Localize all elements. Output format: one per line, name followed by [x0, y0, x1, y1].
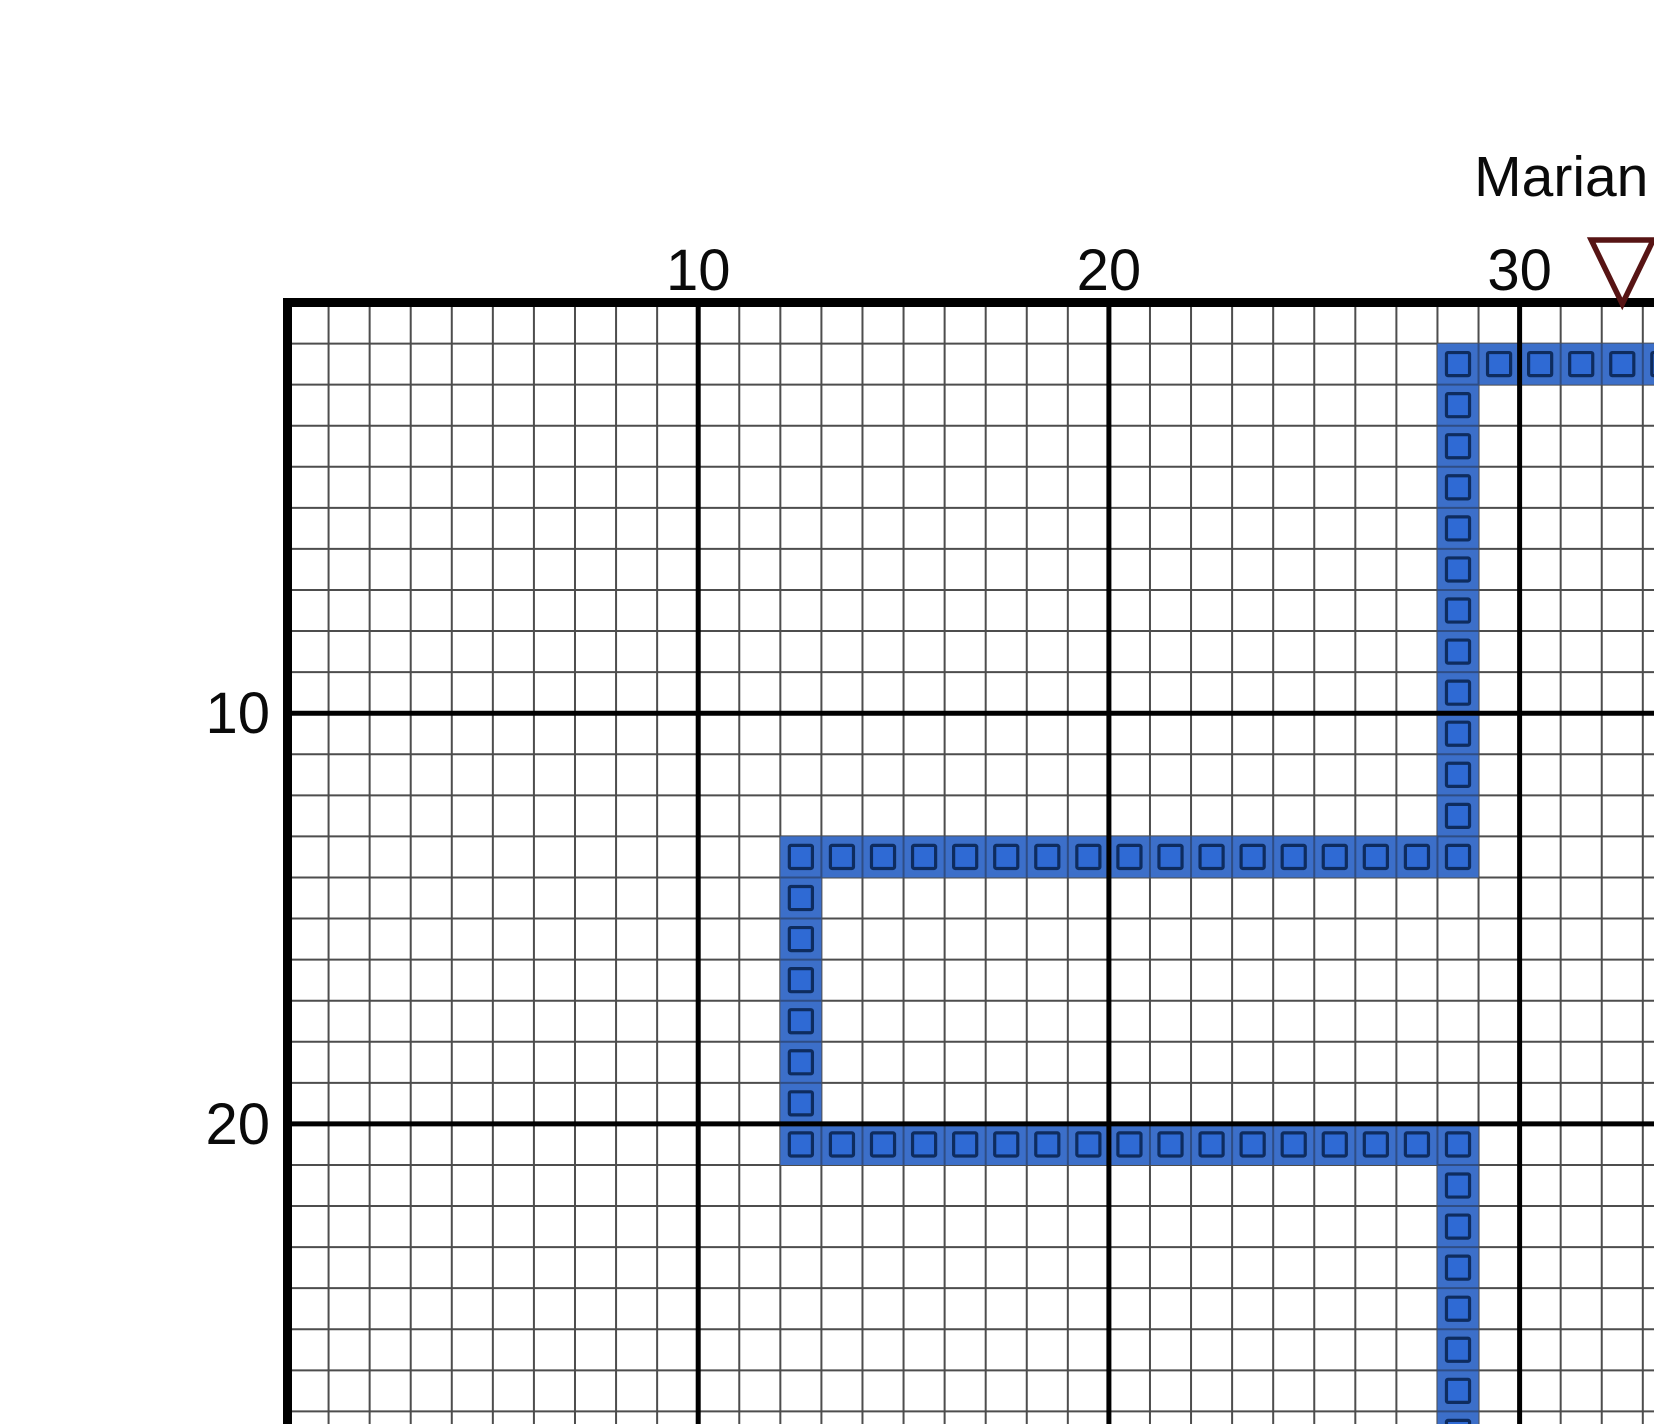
trail-cell-inner-square — [1077, 845, 1100, 868]
trail-cell-inner-square — [954, 1133, 977, 1156]
trail-cell-inner-square — [1364, 845, 1387, 868]
player-name-label: Marian — [1474, 145, 1648, 209]
trail-cell-inner-square — [954, 845, 977, 868]
trail-cell-inner-square — [1364, 1133, 1387, 1156]
trail-cell-inner-square — [789, 1133, 812, 1156]
axis-tick-label-left: 10 — [205, 681, 270, 746]
trail-cell-inner-square — [1446, 1379, 1469, 1402]
trail-cell-inner-square — [871, 1133, 894, 1156]
trail-cell-inner-square — [830, 845, 853, 868]
trail-cell-inner-square — [871, 845, 894, 868]
trail-cell-inner-square — [789, 845, 812, 868]
trail-cell-inner-square — [1488, 353, 1511, 376]
trail-cell-inner-square — [1446, 599, 1469, 622]
trail-cell-inner-square — [1405, 1133, 1428, 1156]
axis-tick-label-top: 10 — [666, 238, 731, 303]
trail-cell-inner-square — [1241, 845, 1264, 868]
trail-cell-inner-square — [1570, 353, 1593, 376]
trail-cell-inner-square — [1241, 1133, 1264, 1156]
trail-cell-inner-square — [789, 1092, 812, 1115]
trail-cell-inner-square — [1405, 845, 1428, 868]
trail-cell-inner-square — [1282, 845, 1305, 868]
trail-cell-inner-square — [789, 969, 812, 992]
trail-cell-inner-square — [1446, 1297, 1469, 1320]
trail-cell-inner-square — [995, 1133, 1018, 1156]
trail-cell-inner-square — [995, 845, 1018, 868]
trail-cell-inner-square — [1446, 558, 1469, 581]
trail-cell-inner-square — [1611, 353, 1634, 376]
trail-cell-inner-square — [1446, 1256, 1469, 1279]
trail-cell-inner-square — [1036, 845, 1059, 868]
trail-cell-inner-square — [1529, 353, 1552, 376]
axis-tick-label-top: 30 — [1487, 238, 1552, 303]
axis-tick-label-top: 20 — [1077, 238, 1142, 303]
game-screen: 102030 1020 Marian — [0, 0, 1654, 1424]
trail-cell-inner-square — [1446, 517, 1469, 540]
game-board[interactable]: 102030 1020 Marian — [0, 0, 1654, 1424]
trail-cell-inner-square — [1200, 845, 1223, 868]
trail-cell-inner-square — [1446, 353, 1469, 376]
trail-cell-inner-square — [1118, 845, 1141, 868]
trail-cell-inner-square — [1036, 1133, 1059, 1156]
trail-cell-inner-square — [1446, 640, 1469, 663]
trail-cell-inner-square — [1282, 1133, 1305, 1156]
trail-cell-inner-square — [1118, 1133, 1141, 1156]
trail-cell-inner-square — [1446, 722, 1469, 745]
trail-cell-inner-square — [913, 1133, 936, 1156]
trail-cell-inner-square — [789, 1010, 812, 1033]
trail-cell-inner-square — [789, 886, 812, 909]
trail-cell-inner-square — [1446, 394, 1469, 417]
trail-cell-inner-square — [1446, 804, 1469, 827]
trail-cell-inner-square — [1446, 1420, 1469, 1424]
trail-cell-inner-square — [1446, 763, 1469, 786]
trail-cell-inner-square — [913, 845, 936, 868]
trail-cell-inner-square — [1446, 476, 1469, 499]
trail-cell-inner-square — [1446, 1133, 1469, 1156]
trail-cell-inner-square — [830, 1133, 853, 1156]
trail-cell-inner-square — [789, 1051, 812, 1074]
trail-cell-inner-square — [1446, 435, 1469, 458]
trail-cell-inner-square — [1077, 1133, 1100, 1156]
trail-cell-inner-square — [1200, 1133, 1223, 1156]
trail-cell-inner-square — [789, 928, 812, 951]
trail-cell-inner-square — [1446, 845, 1469, 868]
axis-tick-label-left: 20 — [205, 1092, 270, 1157]
trail-cell-inner-square — [1446, 681, 1469, 704]
trail-cell-inner-square — [1446, 1215, 1469, 1238]
trail-cell-inner-square — [1159, 845, 1182, 868]
trail-cell-inner-square — [1446, 1338, 1469, 1361]
trail-cell-inner-square — [1323, 845, 1346, 868]
trail-cell-inner-square — [1323, 1133, 1346, 1156]
trail-cell-inner-square — [1159, 1133, 1182, 1156]
trail-cell-inner-square — [1446, 1174, 1469, 1197]
